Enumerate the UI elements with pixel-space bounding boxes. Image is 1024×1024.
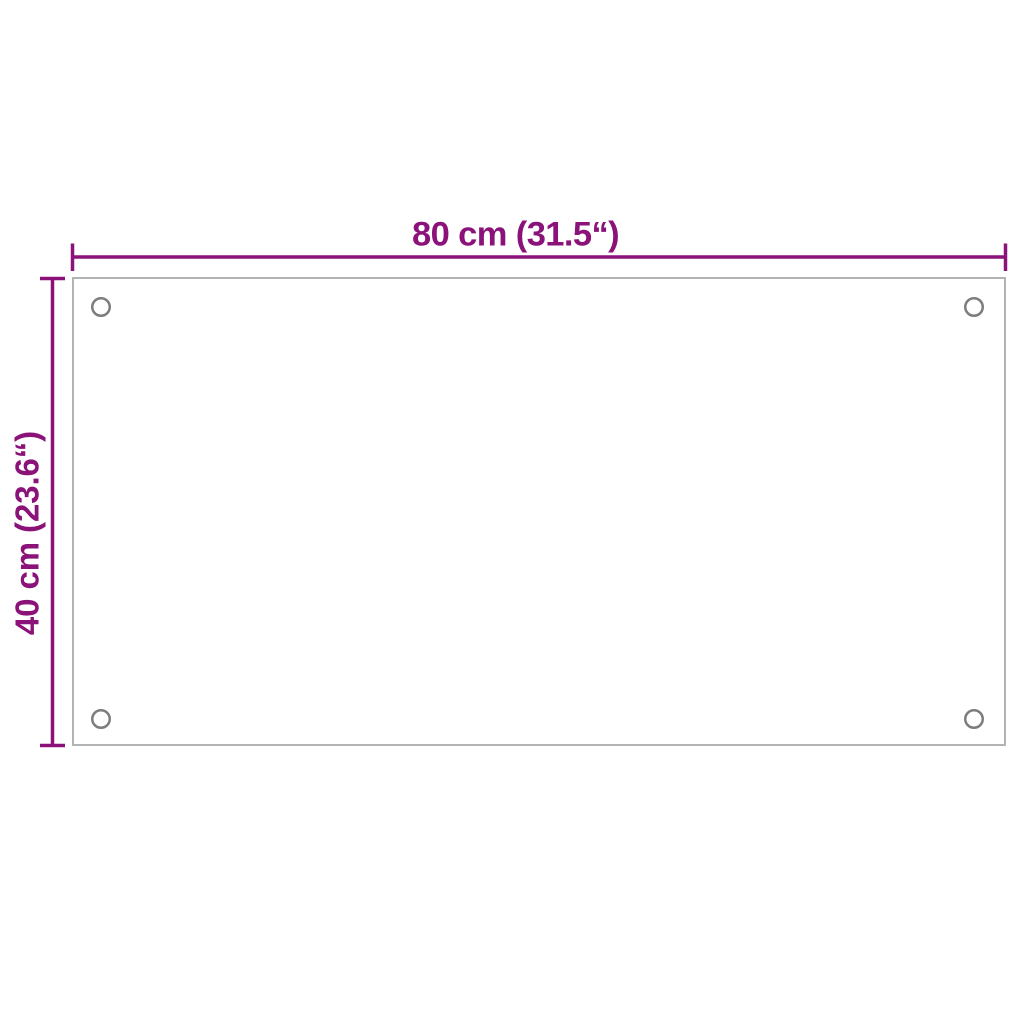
svg-text:40 cm (23.6“): 40 cm (23.6“) (9, 431, 46, 635)
svg-text:80 cm (31.5“): 80 cm (31.5“) (412, 216, 619, 254)
